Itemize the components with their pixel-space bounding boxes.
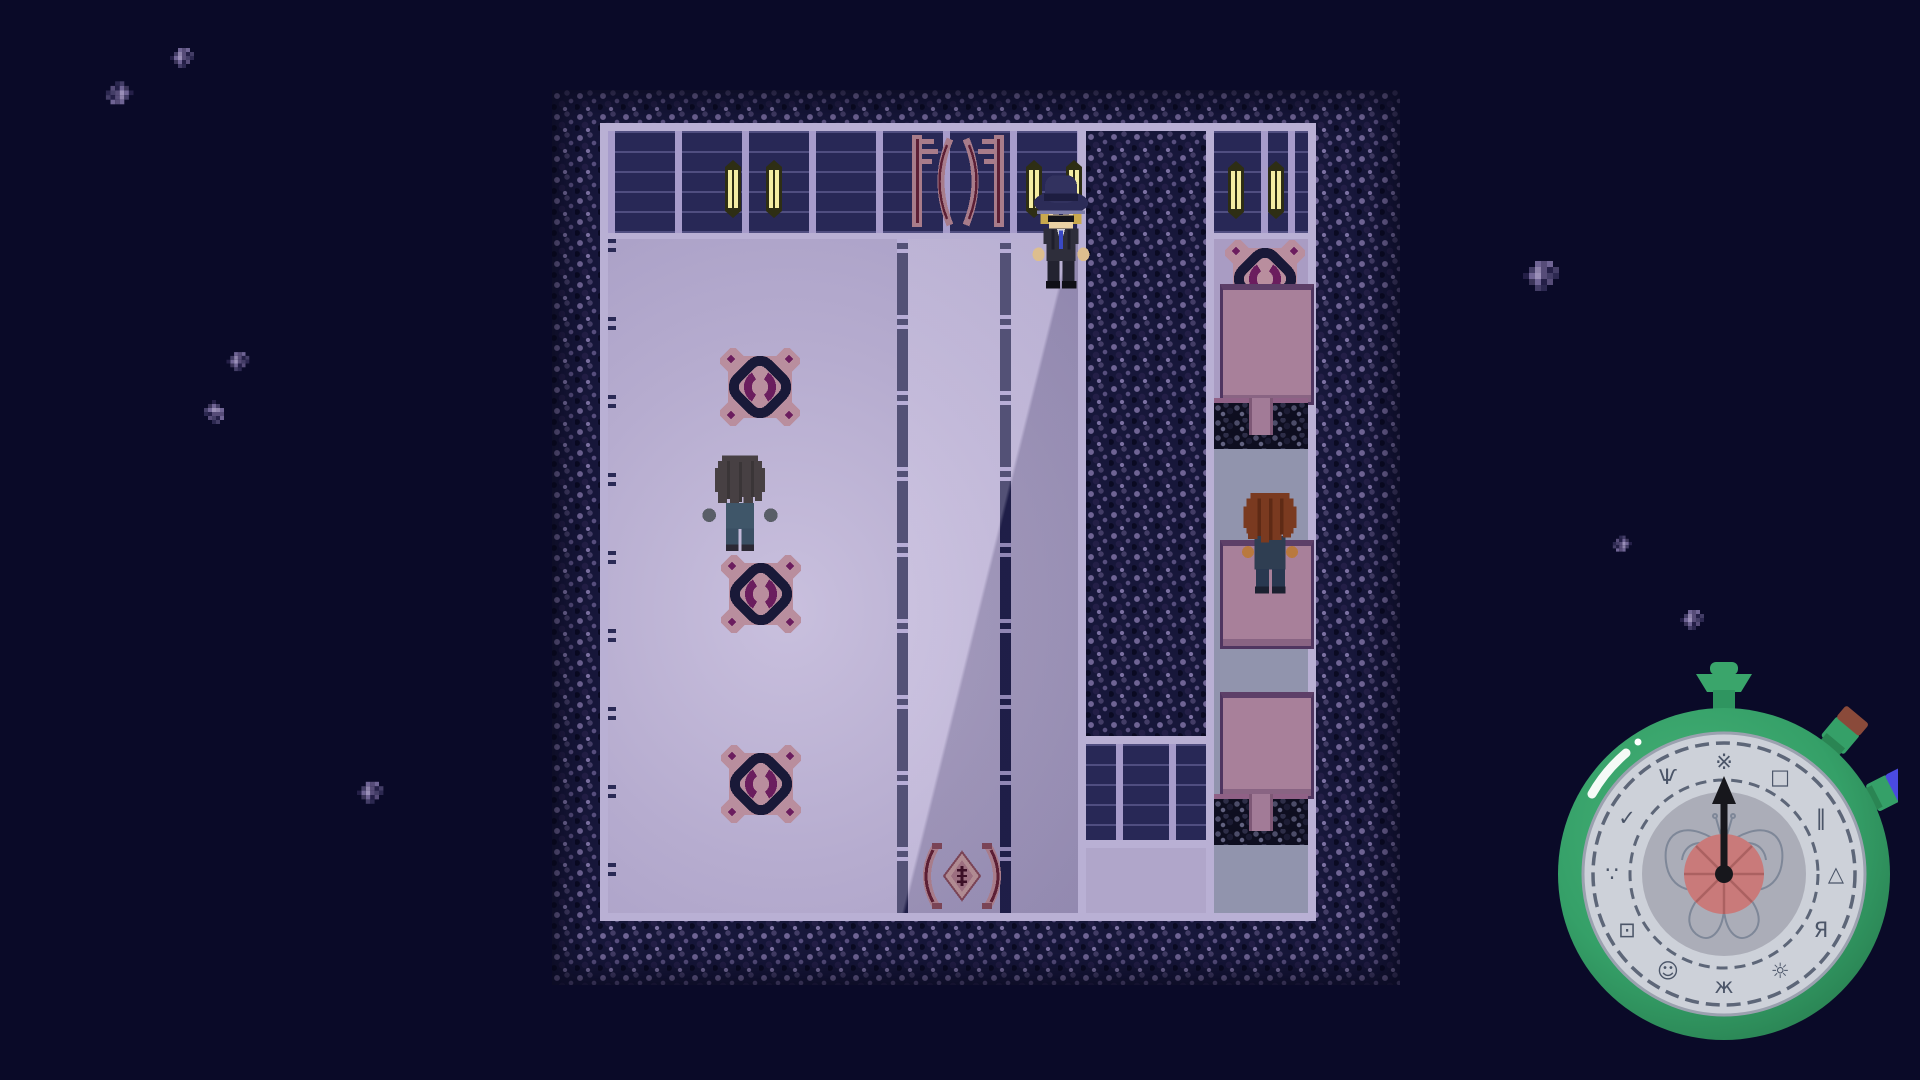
rock-cluster — [234, 352, 238, 356]
clock-glyph: ※ — [1715, 750, 1733, 774]
clock-shine-dot — [1635, 739, 1642, 746]
pillar — [1249, 794, 1273, 831]
wall-candle — [1268, 161, 1284, 219]
divider-floor-patch — [1086, 848, 1206, 913]
game-scene: ※ □ ‖ △ Я ☼ ж ☺ ⊡ ∵ ✓ Ѱ — [0, 0, 1920, 1080]
player-character[interactable] — [702, 454, 778, 554]
left-wall-joints — [608, 239, 616, 913]
player-hand-orb — [764, 508, 778, 522]
rug — [720, 348, 800, 426]
clock-glyph: ☼ — [1771, 959, 1790, 983]
clock-glyph: △ — [1828, 862, 1845, 886]
clock-glyph: ∵ — [1605, 862, 1618, 886]
rock-cluster — [1535, 261, 1541, 267]
wall-candle — [766, 160, 782, 218]
light-shaft — [897, 239, 1078, 913]
divider-shelf-panels — [1086, 744, 1206, 840]
rubble-gap — [1214, 398, 1308, 449]
rock-cluster — [366, 782, 370, 786]
pillar — [1249, 398, 1273, 435]
clock-glyph: ж — [1715, 974, 1734, 998]
curtain-decor — [908, 133, 1008, 231]
clock-glyph: ☺ — [1657, 959, 1679, 983]
clock-glyph: Ѱ — [1659, 765, 1677, 789]
rock-cluster — [120, 100, 125, 105]
clock-glyph: ✓ — [1618, 806, 1636, 830]
clock-glyph: ⊡ — [1618, 918, 1636, 942]
rock-cluster — [220, 408, 224, 412]
exit-door-decor[interactable] — [910, 842, 1014, 910]
clock-glyph: □ — [1770, 765, 1790, 789]
wall-candle — [725, 160, 741, 218]
clock-glyph: Я — [1814, 918, 1829, 942]
curtain-right — [966, 135, 1004, 227]
rug — [721, 745, 801, 823]
player-hand-orb — [702, 508, 716, 522]
sunglasses — [1048, 215, 1074, 222]
loop-clock-hud: ※ □ ‖ △ Я ☼ ж ☺ ⊡ ∵ ✓ Ѱ — [1550, 660, 1898, 1052]
clock-glyph: ‖ — [1816, 806, 1827, 831]
npc-guest[interactable] — [1240, 492, 1300, 594]
rock-cluster — [1688, 610, 1692, 614]
rock-cluster — [1622, 548, 1625, 551]
rubble-gap — [1214, 794, 1308, 845]
rug — [721, 555, 801, 633]
tie — [1059, 230, 1063, 248]
rock-cluster — [178, 48, 182, 52]
stone-divider — [1086, 131, 1206, 736]
bed[interactable] — [1220, 692, 1314, 799]
wall-candle — [1228, 161, 1244, 219]
npc-hat-man[interactable] — [1029, 168, 1093, 292]
clock-crown — [1696, 662, 1752, 710]
bed[interactable] — [1220, 284, 1314, 405]
curtain-left — [912, 135, 950, 227]
